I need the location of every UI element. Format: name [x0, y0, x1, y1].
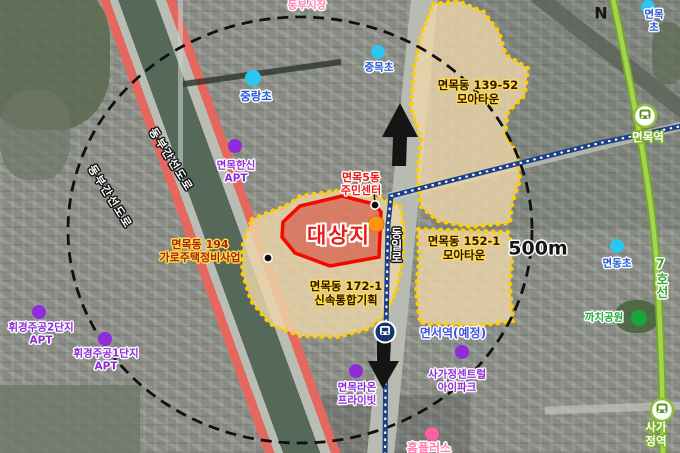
- label-line7: 7호선: [652, 258, 668, 299]
- label-station-sagajeong: 사가정역: [644, 421, 668, 449]
- apt-dot-centralipark: [455, 345, 469, 359]
- label-station-myeonmok: 면목역: [632, 131, 664, 145]
- sagajeong-station-icon: [651, 399, 673, 421]
- north-indicator: N: [594, 3, 607, 22]
- apt-dot-hwigyeong1: [98, 332, 112, 346]
- label-apt-hwigyeong2: 휘경주공2단지 APT: [8, 321, 73, 346]
- apt-dot-hansin: [228, 139, 242, 153]
- community-center-dot: [371, 201, 379, 209]
- myeonseo-station-icon: [375, 322, 396, 343]
- label-apt-hansin: 면목한신 APT: [217, 159, 256, 184]
- label-scale-500m: 500m: [508, 238, 567, 261]
- zone-139-52-area: [411, 1, 528, 227]
- label-dongbu-market: 동부시장: [288, 0, 327, 12]
- label-zone-194: 면목동 194 가로주택정비사업: [160, 238, 241, 264]
- label-apt-centralipark: 사가정센트럴 아이파크: [428, 368, 486, 393]
- label-zone-152-1: 면목동 152-1 모아타운: [428, 235, 501, 263]
- apt-dot-hwigyeong2: [32, 305, 46, 319]
- homeplus-dot: [425, 427, 439, 441]
- label-apt-hwigyeong1: 휘경주공1단지 APT: [73, 347, 138, 372]
- label-school-myeondong: 면동초: [603, 258, 632, 271]
- park-dot: [631, 310, 647, 326]
- line7-route-inner: [612, 0, 663, 453]
- satellite-map: 동부시장 중랑초 중목초 면목초 면동초 면목한신 APT 휘경주공2단지 AP…: [0, 0, 680, 453]
- label-dongil-ro: 동일로: [389, 227, 403, 263]
- label-apt-raon: 면목라온 프라이빗: [338, 381, 377, 406]
- label-target-site: 대상지: [307, 223, 371, 248]
- label-homeplus: 홈플러스: [407, 441, 451, 453]
- label-school-myeonmok: 면목초: [641, 8, 667, 33]
- school-dot-jungnang: [245, 70, 261, 86]
- myeonmok-station-icon: [634, 105, 656, 127]
- label-zone-139-52: 면목동 139-52 모아타운: [438, 79, 519, 107]
- site-corner-dot: [264, 254, 272, 262]
- school-dot-jungmok: [371, 45, 385, 59]
- label-school-jungnang: 중랑초: [240, 90, 272, 104]
- label-park: 까치공원: [585, 312, 624, 325]
- label-community-center: 면목5동 주민센터: [341, 171, 381, 197]
- label-school-jungmok: 중목초: [365, 62, 394, 75]
- label-station-myeonseo: 면서역(예정): [420, 326, 486, 340]
- apt-dot-raon: [349, 364, 363, 378]
- school-dot-myeondong: [610, 239, 624, 253]
- label-zone-172-1: 면목동 172-1 신속통합기획: [310, 280, 383, 308]
